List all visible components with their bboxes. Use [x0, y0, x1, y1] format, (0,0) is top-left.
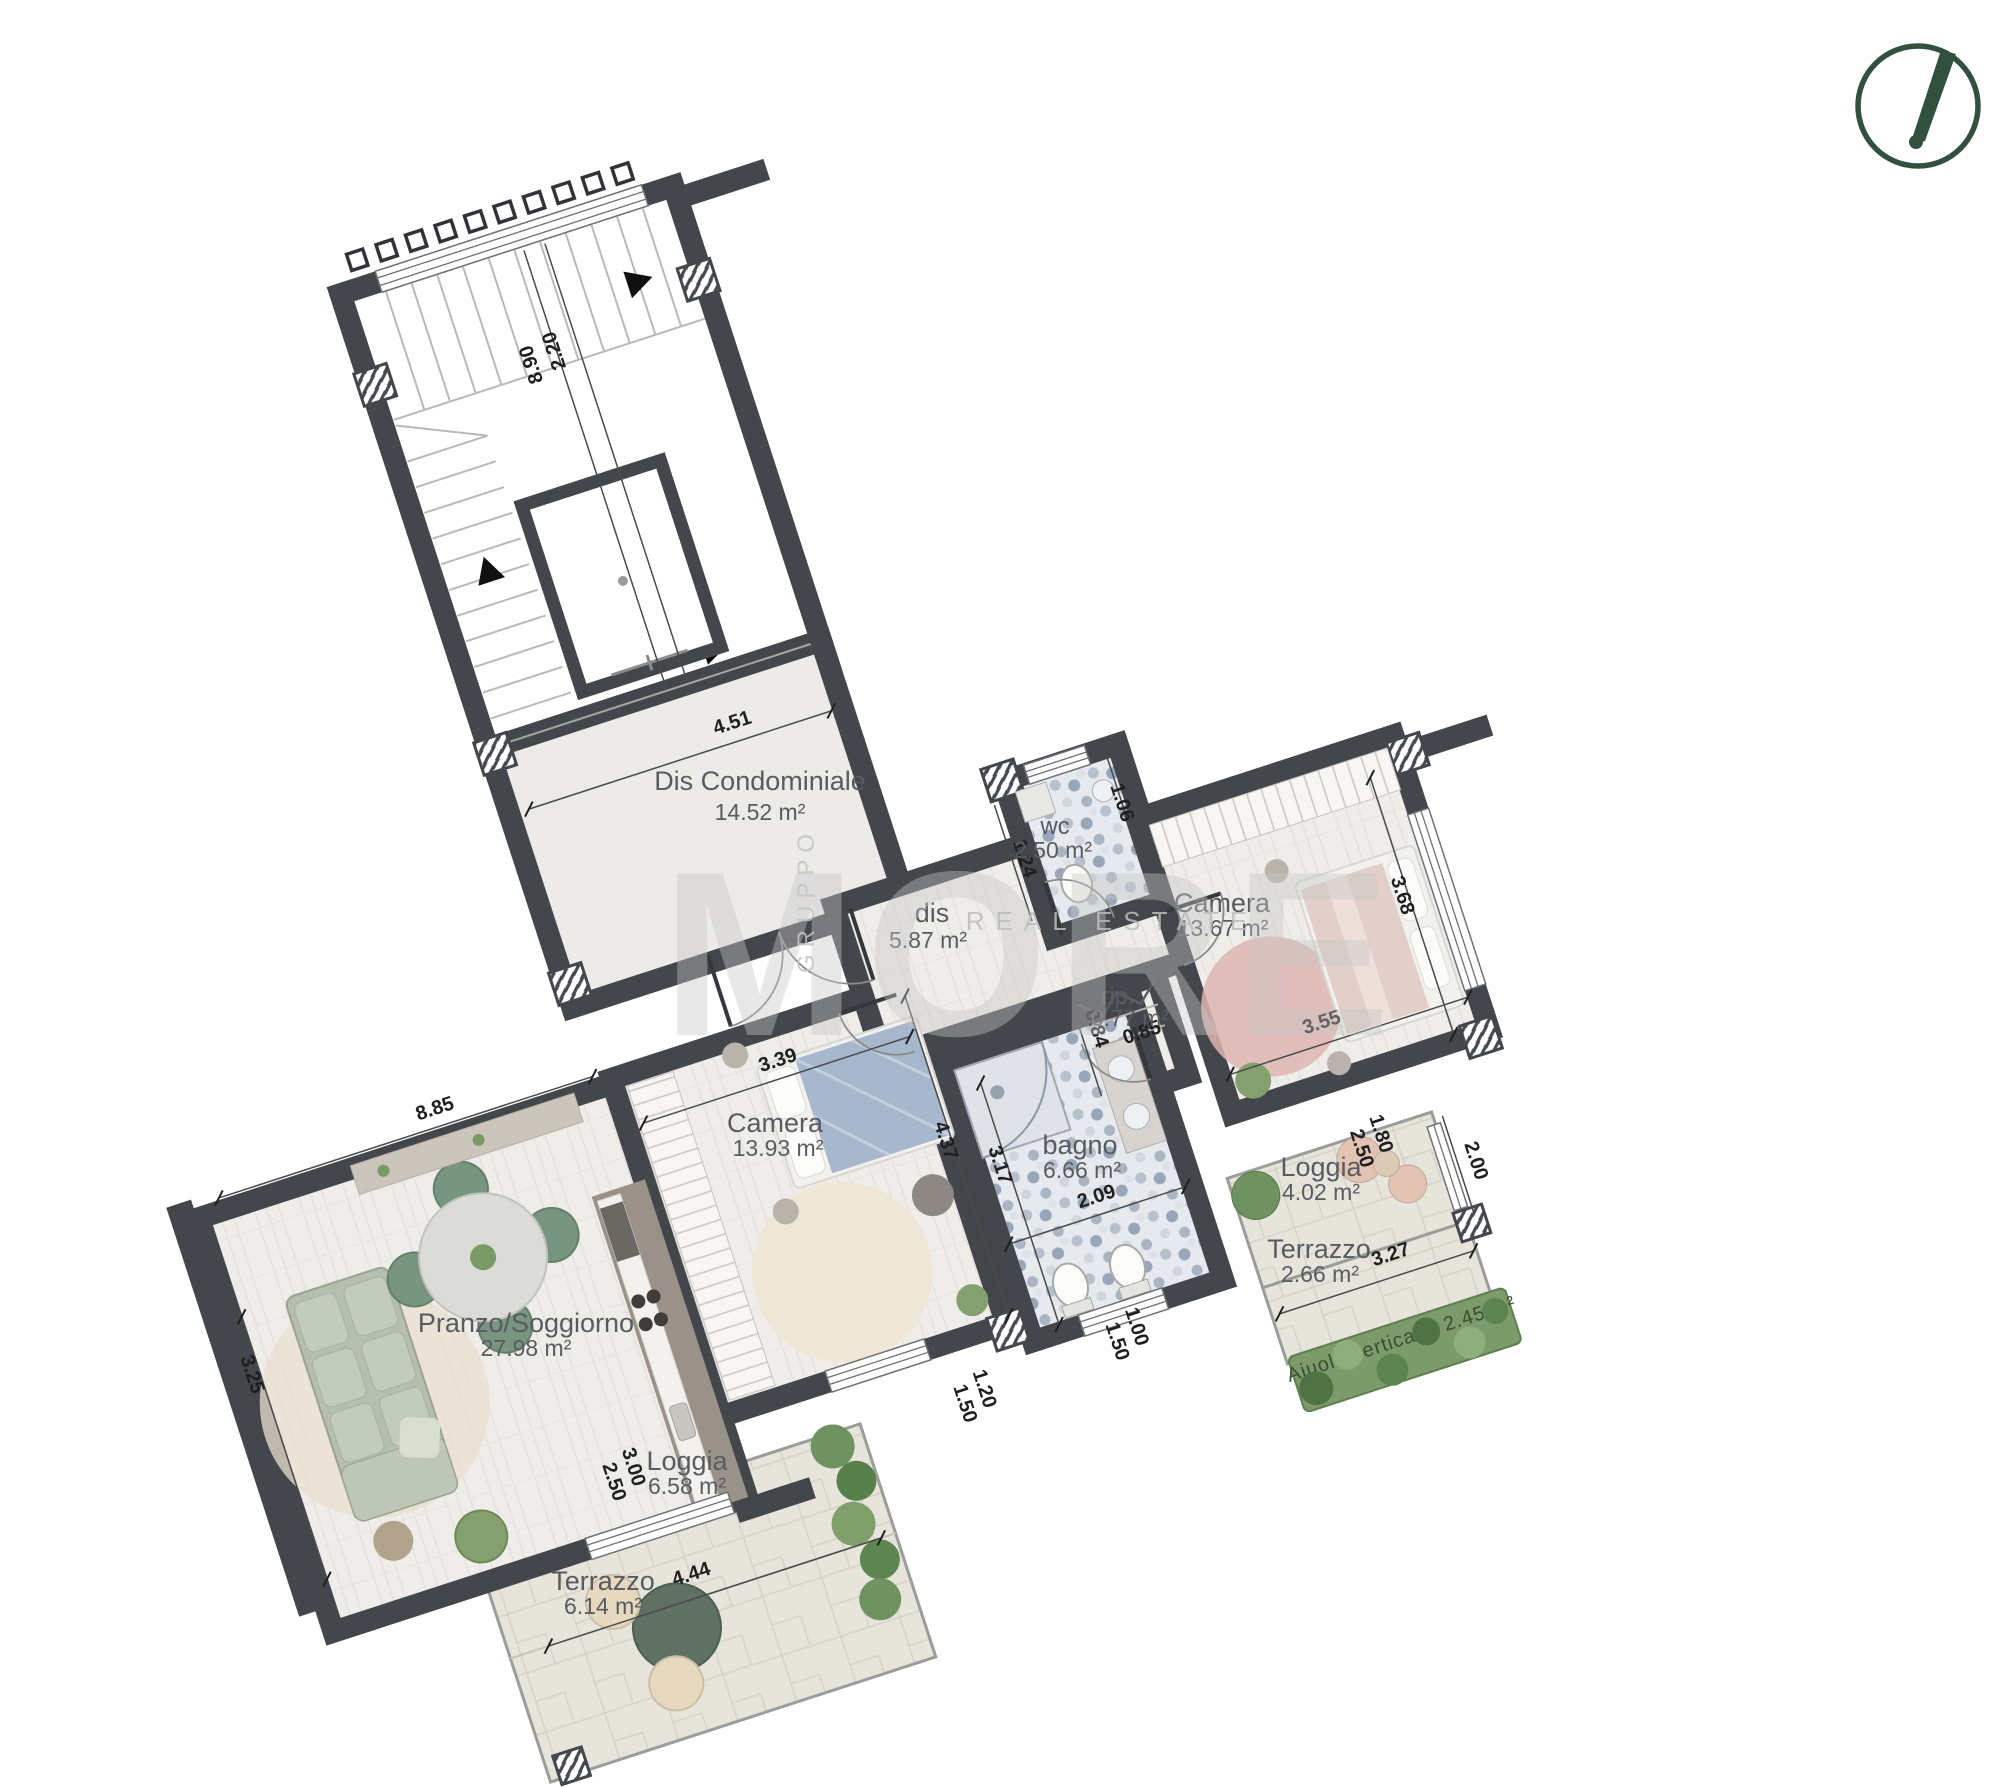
room-area-camera-center: 13.93 m²	[733, 1135, 824, 1161]
floor-plan-page: Aiuola verticale: 2.45 m²	[0, 0, 2000, 1787]
room-label-loggia-right: Loggia	[1280, 1152, 1362, 1182]
watermark-brand: MORE	[662, 822, 1399, 1085]
dim-loggia-right-depth: 2.00	[1459, 1139, 1492, 1183]
room-area-terrazzo-right: 2.66 m²	[1281, 1261, 1359, 1287]
floor-plan: Aiuola verticale: 2.45 m²	[0, 0, 2000, 1787]
watermark-tagline: REAL ESTATE	[966, 906, 1258, 936]
room-area-loggia-left: 6.58 m²	[648, 1473, 726, 1499]
room-label-terrazzo-right: Terrazzo	[1267, 1234, 1371, 1264]
room-label-pranzo: Pranzo/Soggiorno	[418, 1308, 634, 1338]
watermark: GRUPPO MORE REAL ESTATE	[662, 822, 1399, 1085]
room-label-bagno: bagno	[1042, 1130, 1117, 1160]
room-label-dis-condominiale: Dis Condominiale	[654, 766, 866, 796]
room-label-loggia-left: Loggia	[646, 1446, 728, 1476]
room-area-loggia-right: 4.02 m²	[1282, 1179, 1360, 1205]
room-label-terrazzo-left: Terrazzo	[551, 1566, 655, 1596]
room-area-pranzo: 27.98 m²	[481, 1335, 572, 1361]
dim-living-length: 8.85	[413, 1092, 457, 1125]
room-label-camera-center: Camera	[727, 1108, 824, 1138]
room-area-bagno: 6.66 m²	[1043, 1157, 1121, 1183]
room-area-terrazzo-left: 6.14 m²	[564, 1593, 642, 1619]
north-arrow-icon	[1858, 46, 1978, 166]
